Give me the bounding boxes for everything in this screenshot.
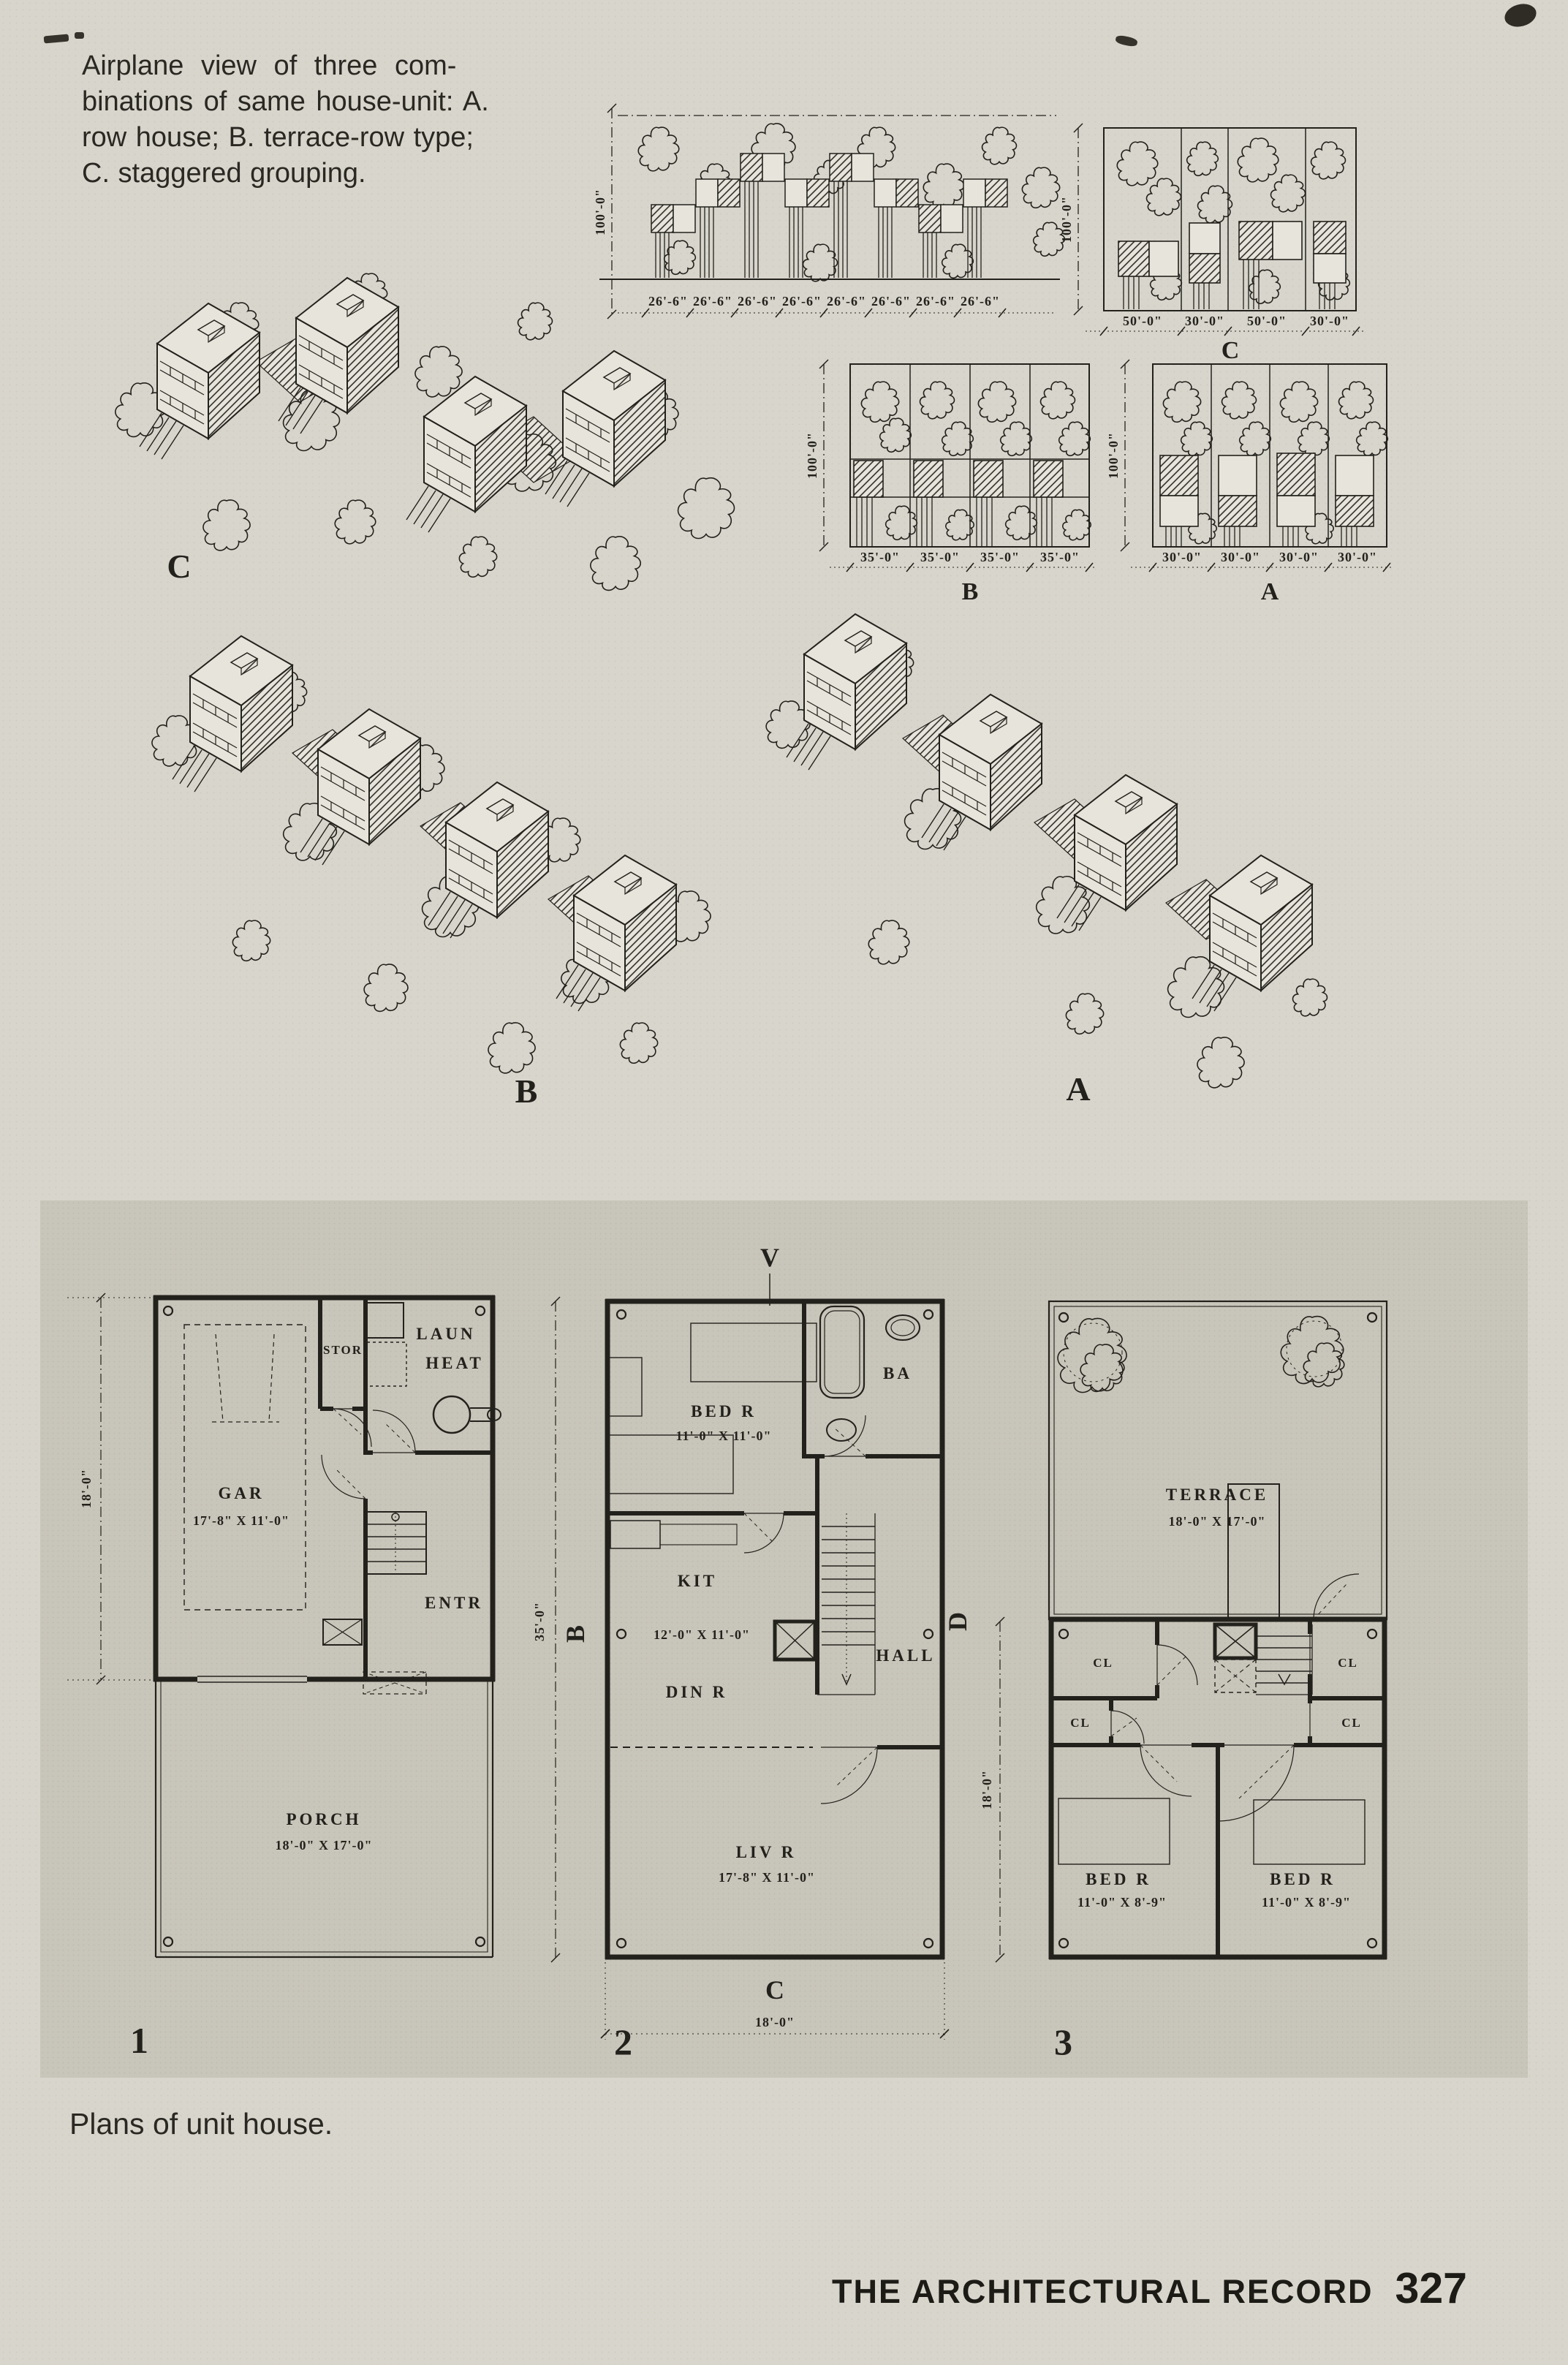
lot-dim-label: 30'-0": [1185, 314, 1224, 328]
plan1-side-dim: 18'-0": [79, 1469, 94, 1508]
room-label-bed: BED R: [691, 1402, 757, 1420]
room-label-heat: HEAT: [425, 1354, 483, 1372]
room-label-stor: STOR: [323, 1343, 363, 1357]
room-label-hall: HALL: [876, 1646, 935, 1665]
room-dim-liv: 17'-8" X 11'-0": [719, 1870, 815, 1885]
room-dim-bed1: 11'-0" X 8'-9": [1077, 1895, 1167, 1910]
crop-mark: [44, 34, 69, 44]
garage-car-outline: [184, 1325, 306, 1610]
stairs: [1215, 1624, 1312, 1695]
entry-stoop: [363, 1672, 426, 1694]
room-label-ba: BA: [883, 1364, 912, 1382]
room-label-entr: ENTR: [425, 1594, 483, 1612]
page-corner-mark: [1502, 1, 1539, 30]
aerial-view-a: A: [760, 570, 1374, 1115]
house-unit: [428, 782, 548, 938]
lot-dim-label: 35'-0": [920, 550, 960, 564]
room-dim-bed2: 11'-0" X 8'-9": [1262, 1895, 1351, 1910]
stair-bulkhead: [1228, 1484, 1279, 1619]
aerial-a-label: A: [1066, 1070, 1090, 1108]
caption-line: C. staggered grouping.: [82, 156, 520, 192]
plan2-number: 2: [614, 2021, 632, 2062]
lot-dim-label: 30'-0": [1279, 550, 1319, 564]
caption-line: Airplane view of three com-: [82, 48, 520, 84]
chimney: [775, 1622, 815, 1660]
room-dim-porch: 18'-0" X 17'-0": [276, 1838, 373, 1853]
terrace-trees: [1058, 1317, 1344, 1393]
aerial-view-c: C: [110, 260, 841, 669]
aerial-c-label: C: [167, 548, 191, 585]
lot-dim-label: 30'-0": [1221, 550, 1260, 564]
lot-dimension-row: 35'-0" 35'-0" 35'-0" 35'-0": [830, 550, 1097, 572]
room-label-cl: CL: [1093, 1656, 1113, 1670]
beds: [1058, 1798, 1365, 1864]
plan3-side-dim: 18'-0": [980, 1770, 994, 1809]
bed: [607, 1435, 733, 1494]
marker-b: B: [561, 1625, 590, 1643]
lot-dim-label: 35'-0": [860, 550, 900, 564]
bottom-dimension: C 18'-0": [601, 1962, 949, 2040]
lot-dim-label: 30'-0": [1310, 314, 1349, 328]
house-unit: [787, 614, 906, 770]
lot-dimension-row: 30'-0" 30'-0" 30'-0" 30'-0": [1131, 550, 1393, 572]
room-label-laun: LAUN: [416, 1325, 475, 1343]
room-label-din: DIN R: [666, 1683, 728, 1701]
room-dim-bed: 11'-0" X 11'-0": [676, 1429, 772, 1443]
kitchen-counter: [610, 1521, 737, 1548]
dresser: [608, 1358, 642, 1416]
lot-dim-label: 35'-0": [980, 550, 1020, 564]
floor-plan-3: 18'-0": [972, 1236, 1477, 2098]
depth-dim-label: 100'-0": [1106, 432, 1121, 479]
house-unit: [406, 376, 526, 532]
plan1-number: 1: [130, 2020, 148, 2061]
crop-mark: [75, 32, 84, 39]
terrace-walls: [1049, 1301, 1387, 1619]
footer-page-number: 327: [1395, 2263, 1467, 2313]
floor-plan-1: 18'-0": [66, 1236, 548, 2098]
marker-v: V: [760, 1243, 779, 1272]
room-label-liv: LIV R: [736, 1843, 797, 1861]
room-label-cl: CL: [1070, 1716, 1091, 1730]
site-plan-b: 100'-0" 35'-0" 35'-0" 35'-0" 35'-0": [808, 349, 1100, 605]
room-dim-terrace: 18'-0" X 17'-0": [1169, 1514, 1266, 1529]
lot-dim-label: 30'-0": [1162, 550, 1202, 564]
lot-dim-label: 26'-6": [961, 294, 1000, 309]
room-label-cl: CL: [1338, 1656, 1358, 1670]
bathtub: [820, 1306, 864, 1398]
lot-dim-label: 35'-0": [1040, 550, 1080, 564]
depth-dim-label: 100'-0": [593, 189, 607, 235]
lot-dim-label: 50'-0": [1123, 314, 1162, 328]
plans-caption: Plans of unit house.: [69, 2107, 333, 2141]
footer: THE ARCHITECTURAL RECORD 327: [832, 2263, 1467, 2313]
room-label-bed1: BED R: [1086, 1870, 1151, 1888]
caption-line: row house; B. terrace-row type;: [82, 120, 520, 156]
houses: [1160, 453, 1374, 547]
house-unit: [140, 303, 260, 459]
footer-magazine-title: THE ARCHITECTURAL RECORD: [832, 2273, 1374, 2311]
stairs: [817, 1513, 875, 1695]
caption: Airplane view of three com- binations of…: [82, 48, 520, 192]
lot-dimension-row: 50'-0" 30'-0" 50'-0" 30'-0": [1086, 314, 1365, 336]
house-unit: [173, 636, 292, 792]
house-unit: [279, 278, 398, 434]
toilet: [827, 1419, 856, 1441]
room-dim-kit: 12'-0" X 11'-0": [654, 1627, 750, 1642]
room-label-gar: GAR: [218, 1484, 264, 1502]
floor-plan-2: V 35'-0" B D: [512, 1236, 994, 2098]
plan2-bottom-dim: 18'-0": [755, 2015, 795, 2029]
magazine-page: Airplane view of three com- binations of…: [0, 0, 1568, 2365]
house-unit: [1057, 775, 1177, 931]
plan3-number: 3: [1054, 2021, 1072, 2062]
house-unit: [545, 351, 665, 507]
houses: [1118, 222, 1346, 309]
lot-dim-label: 26'-6": [916, 294, 955, 309]
marker-c: C: [765, 1975, 784, 2005]
marker-d: D: [943, 1612, 972, 1631]
boiler: [433, 1396, 470, 1433]
room-dim-gar: 17'-8" X 11'-0": [193, 1513, 289, 1528]
depth-dim-label: 100'-0": [1059, 196, 1074, 243]
house-unit: [1192, 855, 1312, 1011]
room-label-kit: KIT: [678, 1572, 717, 1590]
plan2-side-dim: 35'-0": [532, 1602, 547, 1641]
lot-dim-label: 30'-0": [1338, 550, 1377, 564]
room-label-terrace: TERRACE: [1166, 1486, 1268, 1504]
house-unit: [300, 709, 420, 865]
room-label-porch: PORCH: [286, 1810, 361, 1828]
crop-mark: [1115, 34, 1138, 48]
stairs: [366, 1512, 426, 1574]
room-label-bed2: BED R: [1270, 1870, 1336, 1888]
door-swings: [744, 1415, 877, 1804]
aerial-view-b: B: [139, 614, 833, 1111]
site-plan-c: 100'-0" 50'-0" 30'-0" 50'-0" 30'-0" C: [1064, 99, 1371, 362]
house-unit: [556, 855, 676, 1011]
lot-dim-label: 26'-6": [871, 294, 911, 309]
aerial-b-label: B: [515, 1072, 538, 1110]
room-label-cl: CL: [1341, 1716, 1362, 1730]
bed: [691, 1323, 817, 1382]
site-plan-a: 100'-0" 30'-0" 30'-0" 30'-0" 30'-0" A: [1107, 349, 1396, 605]
lot-dim-label: 50'-0": [1247, 314, 1287, 328]
caption-line: binations of same house-unit: A.: [82, 84, 520, 120]
